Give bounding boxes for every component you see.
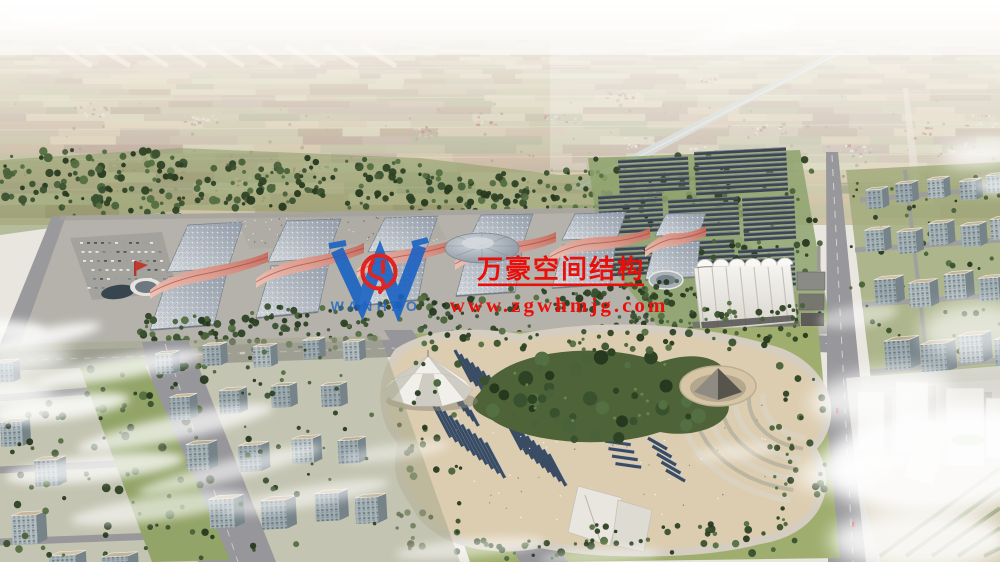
tree [244, 425, 247, 428]
plaza-speckle [281, 225, 282, 226]
parked-car [129, 242, 132, 244]
tree [180, 176, 183, 179]
tree [778, 326, 784, 332]
central-park [383, 301, 840, 562]
tree [141, 196, 145, 200]
tree [155, 523, 158, 526]
tree [140, 330, 147, 337]
grove-tree [583, 391, 597, 405]
tree [243, 181, 248, 186]
parked-car [115, 242, 118, 244]
tree [532, 189, 535, 192]
tree [152, 177, 156, 181]
grove-tree [691, 408, 706, 423]
tree [242, 202, 245, 205]
building-windows [343, 342, 360, 362]
grove-tree [537, 365, 543, 371]
tree [414, 361, 419, 366]
grove-highlight [513, 372, 516, 375]
tree [775, 486, 778, 489]
tree [242, 315, 250, 323]
tree [246, 196, 255, 205]
plaza-speckle [506, 508, 507, 509]
tree [248, 324, 252, 328]
plaza-speckle [241, 232, 242, 233]
tree [270, 171, 273, 174]
tree [664, 529, 671, 536]
tree [711, 255, 717, 261]
tree [614, 530, 617, 533]
tree [210, 165, 217, 172]
tree [355, 331, 361, 337]
parked-car [90, 260, 93, 262]
tree [347, 206, 351, 210]
tree [665, 344, 672, 351]
tree [263, 477, 269, 483]
building-side [220, 342, 228, 365]
tree [515, 193, 521, 199]
plaza-speckle [353, 231, 354, 232]
tree [248, 356, 252, 360]
building-windows [864, 229, 884, 252]
tree [233, 332, 239, 338]
tree [226, 164, 229, 167]
tree [238, 329, 246, 337]
plaza-speckle [376, 217, 377, 218]
tree [22, 532, 29, 539]
tree [144, 546, 148, 550]
tree [800, 303, 805, 308]
tree [307, 473, 310, 476]
grove-tree [546, 389, 555, 398]
tree [253, 379, 256, 382]
tree [730, 240, 734, 244]
tree [258, 166, 264, 172]
tree [792, 538, 798, 544]
building-windows [897, 231, 917, 254]
tree [157, 169, 162, 174]
tree [679, 319, 683, 323]
parked-car [124, 251, 127, 253]
tree [276, 444, 281, 449]
tree [145, 169, 150, 174]
tree [700, 540, 707, 547]
parked-car [108, 242, 111, 244]
tree [890, 187, 894, 191]
parked-car [150, 242, 153, 244]
parked-car [117, 251, 120, 253]
tree [782, 518, 785, 521]
parked-car [83, 260, 86, 262]
tree [504, 556, 509, 561]
tree [117, 174, 125, 182]
tree [160, 202, 164, 206]
tree [105, 185, 111, 191]
grove-tree [629, 417, 637, 425]
tree [886, 328, 892, 334]
grove-tree [532, 421, 538, 427]
tree [139, 206, 143, 210]
tree [584, 169, 588, 173]
tree [426, 179, 432, 185]
tree [732, 310, 737, 315]
tree [304, 349, 307, 352]
tree [294, 190, 301, 197]
plaza-speckle [269, 229, 270, 230]
tree [668, 300, 675, 307]
tree [491, 203, 497, 209]
tree [40, 186, 47, 193]
plaza-speckle [522, 448, 523, 449]
tree [576, 183, 580, 187]
parked-car [86, 278, 89, 280]
tree [467, 199, 474, 206]
tree [29, 485, 34, 490]
parked-car [146, 260, 149, 262]
grove-highlight [564, 397, 567, 400]
tree [574, 542, 577, 545]
plaza-speckle [433, 240, 434, 241]
tree [760, 317, 765, 322]
parked-car [157, 242, 160, 244]
tree [322, 177, 327, 182]
tree [367, 318, 370, 321]
plaza-speckle [560, 495, 561, 496]
tree [373, 522, 377, 526]
tree [685, 288, 689, 292]
tree [65, 193, 69, 197]
tree [129, 186, 135, 192]
tree [210, 535, 214, 539]
tree [675, 523, 681, 529]
tree [783, 397, 788, 402]
parked-car [92, 269, 95, 271]
tree [308, 381, 312, 385]
tree [777, 524, 784, 531]
tree [508, 286, 514, 292]
tree [265, 175, 268, 178]
tree [782, 493, 786, 497]
tree [646, 346, 654, 354]
building-side [270, 343, 278, 366]
tree [229, 319, 235, 325]
building-side [319, 337, 327, 358]
tree [390, 192, 395, 197]
grove-highlight [571, 419, 574, 422]
tree [211, 329, 214, 332]
tree [102, 483, 111, 492]
tree [121, 163, 126, 168]
parked-car [120, 269, 123, 271]
parked-car [153, 260, 156, 262]
parked-car [89, 251, 92, 253]
tree [459, 466, 462, 469]
tree [313, 175, 316, 178]
plaza-speckle [761, 405, 762, 406]
tree [54, 170, 61, 177]
tree [440, 316, 447, 323]
tree [231, 329, 234, 332]
tree [597, 334, 601, 338]
tree [809, 168, 814, 173]
tree [145, 148, 151, 154]
tree [309, 165, 313, 169]
tree [592, 348, 596, 352]
tree [145, 325, 148, 328]
tree [490, 180, 496, 186]
plaza-speckle [661, 514, 662, 515]
watermark-underline [478, 284, 644, 287]
tree [511, 180, 518, 187]
shed [797, 272, 825, 290]
tree [776, 516, 779, 519]
tree [333, 410, 338, 415]
tree [213, 320, 221, 328]
grove-tree [613, 432, 624, 443]
plaza-speckle [261, 240, 262, 241]
tree [771, 547, 776, 552]
tree [436, 316, 439, 319]
plaza-speckle [245, 225, 246, 226]
tree [770, 310, 774, 314]
plaza-speckle [489, 502, 490, 503]
tree [500, 180, 507, 187]
tree [593, 156, 598, 161]
plaza-speckle [509, 474, 510, 475]
tree [51, 450, 58, 457]
tree [283, 191, 288, 196]
plaza-speckle [458, 418, 459, 419]
tree [95, 165, 103, 173]
tree [757, 240, 761, 244]
parked-car [122, 242, 125, 244]
tree [62, 205, 66, 209]
building-windows [874, 278, 897, 304]
tree [206, 322, 211, 327]
tree [513, 551, 516, 554]
plaza-speckle [286, 218, 287, 219]
tree [79, 175, 88, 184]
plaza-speckle [520, 436, 521, 437]
tree [562, 198, 566, 202]
tree [499, 328, 506, 335]
tree [532, 554, 535, 557]
tree [209, 196, 218, 205]
tree [595, 523, 599, 527]
plaza-speckle [717, 498, 718, 499]
tree [718, 312, 724, 318]
tree [294, 321, 301, 328]
tree [426, 298, 429, 301]
grove-tree [582, 353, 593, 364]
tree [852, 195, 855, 198]
parked-car [141, 269, 144, 271]
plaza-speckle [761, 438, 762, 439]
tree [293, 541, 299, 547]
tree [250, 311, 254, 315]
tree [422, 297, 425, 300]
tree [673, 321, 677, 325]
plaza-speckle [722, 494, 723, 495]
tree [642, 286, 645, 289]
tree [567, 172, 570, 175]
building-side [377, 493, 388, 523]
tree [430, 340, 435, 345]
tree [578, 341, 581, 344]
tree [70, 148, 74, 152]
tree [437, 182, 445, 190]
tree [600, 537, 608, 545]
tree [248, 393, 251, 396]
tree [451, 412, 457, 418]
tree [199, 555, 204, 560]
tree [250, 543, 256, 549]
tree [859, 281, 865, 287]
tree [334, 168, 338, 172]
tree [281, 370, 286, 375]
tree [264, 315, 269, 320]
tree [20, 164, 25, 169]
tree [382, 195, 388, 201]
tree [873, 215, 878, 220]
tree [200, 197, 203, 200]
tree [111, 202, 119, 210]
grove-tree [545, 371, 554, 380]
tree [166, 525, 171, 530]
plaza-speckle [277, 234, 278, 235]
logo-w-serif-right [412, 240, 428, 244]
parked-car [155, 269, 158, 271]
grove-tree [607, 348, 615, 356]
parked-car [121, 278, 124, 280]
tree [26, 169, 32, 175]
parked-car [139, 260, 142, 262]
tree [624, 343, 628, 347]
tree [406, 193, 414, 201]
tree [422, 173, 427, 178]
tree [255, 173, 262, 180]
tree [297, 426, 301, 430]
tree [688, 322, 691, 325]
tree [245, 436, 251, 442]
tree [73, 171, 78, 176]
tree [659, 319, 664, 324]
tree [418, 173, 421, 176]
tree [813, 218, 818, 223]
tree [792, 308, 796, 312]
plaza-speckle [543, 442, 544, 443]
tree [625, 330, 630, 335]
tree [256, 187, 264, 195]
tree [128, 208, 134, 214]
parked-car [111, 260, 114, 262]
tree [330, 175, 335, 180]
tree [241, 392, 244, 395]
tree [362, 157, 367, 162]
plaza-speckle [724, 427, 725, 428]
tree [328, 478, 331, 481]
parked-car [101, 242, 104, 244]
tree [748, 549, 756, 557]
tree [100, 387, 105, 392]
tree [343, 427, 347, 431]
tree [436, 176, 441, 181]
tree [182, 196, 185, 199]
building-side [359, 339, 367, 360]
tree [629, 319, 634, 324]
plaza-speckle [490, 495, 491, 496]
tree [662, 525, 666, 529]
grove-tree [613, 388, 619, 394]
parked-car [145, 251, 148, 253]
grove-tree [535, 352, 550, 367]
parked-car [143, 242, 146, 244]
tree [794, 318, 798, 322]
tree [258, 382, 262, 386]
tree [120, 153, 127, 160]
plaza-speckle [689, 465, 690, 466]
parked-car [100, 278, 103, 280]
tree [204, 316, 209, 321]
tree [13, 170, 17, 174]
tree [33, 190, 38, 195]
grove-tree [660, 379, 673, 392]
tree [145, 313, 152, 320]
tree [657, 280, 661, 284]
tree [421, 437, 424, 440]
grove-highlight [663, 363, 666, 366]
tree [230, 164, 236, 170]
tree [582, 347, 586, 351]
tree [735, 242, 741, 248]
plaza-speckle [566, 483, 567, 484]
tree [193, 314, 197, 318]
tree [374, 174, 380, 180]
tree [907, 205, 912, 210]
plaza-speckle [764, 476, 765, 477]
tree [629, 541, 633, 545]
plaza-speckle [244, 221, 245, 222]
tree [789, 445, 795, 451]
tree [305, 313, 310, 318]
tree [788, 460, 793, 465]
tree [99, 186, 106, 193]
tree [431, 345, 438, 352]
tree [269, 204, 272, 207]
tree [788, 304, 792, 308]
tree [285, 182, 289, 186]
plaza-speckle [271, 219, 272, 220]
tree [497, 193, 503, 199]
tree [234, 196, 241, 203]
plaza-speckle [436, 239, 437, 240]
grove-tree [538, 394, 547, 403]
tree [282, 318, 288, 324]
tree [799, 415, 804, 420]
tree [41, 546, 46, 551]
tree [708, 521, 714, 527]
tree [211, 181, 216, 186]
tree [122, 188, 127, 193]
parked-car [88, 287, 91, 289]
watermark-company-name: 万豪空间结构 [477, 254, 645, 284]
tree [802, 239, 810, 247]
tree [281, 175, 285, 179]
tree [806, 439, 813, 446]
tree [704, 318, 707, 321]
tree [173, 382, 178, 387]
plaza-speckle [252, 233, 253, 234]
